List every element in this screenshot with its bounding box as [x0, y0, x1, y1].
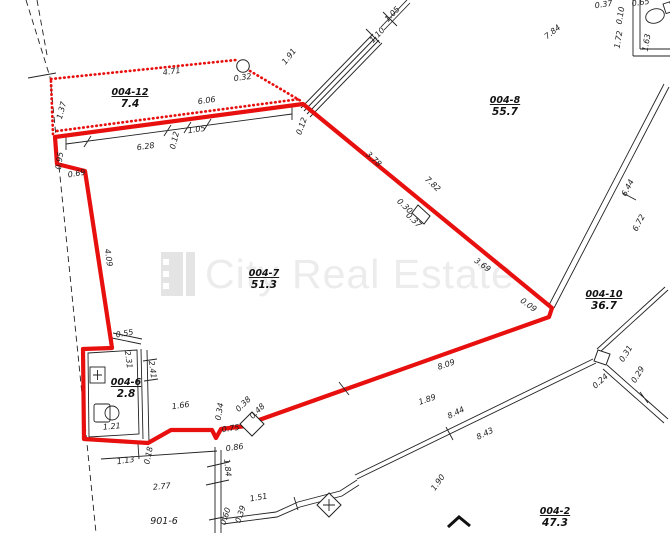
dimension-label: 0.55	[115, 328, 134, 340]
parcel-boundary-dashed	[26, 0, 96, 533]
boundary-bottom-right	[355, 287, 668, 479]
dimension-label: 0.09	[519, 296, 539, 314]
dimension-label: 2.31	[123, 350, 134, 369]
sink-icon	[94, 404, 119, 422]
dimension-label: 1.72	[613, 30, 625, 49]
dimension-label: 8.43	[475, 426, 495, 442]
dimension-label: 6.28	[136, 141, 155, 152]
room-id-label: 004-12	[112, 87, 149, 98]
dimension-label: 0.69	[67, 168, 86, 180]
dimension-label: 2.41	[147, 360, 158, 379]
dimension-label: 4.09	[103, 248, 114, 267]
dimension-label: 1.21	[103, 421, 122, 432]
dimension-label: 1.37	[55, 100, 69, 120]
dimension-label: 2.77	[153, 481, 172, 492]
dimension-label: 1.51	[249, 492, 268, 504]
dimension-label: 0.10	[615, 6, 627, 25]
room-area-label: 47.3	[541, 517, 568, 529]
dimension-label: 0.34	[214, 402, 226, 421]
wall-jog-square	[594, 350, 610, 365]
dimension-label: 901-6	[150, 516, 178, 527]
dimension-label: 0.12	[168, 131, 181, 150]
stove-icon	[90, 367, 105, 383]
dimension-label: 1.13	[116, 455, 135, 466]
room-area-label: 36.7	[591, 300, 618, 312]
dimension-label: 1.05	[187, 124, 206, 135]
room-id-label: 004-10	[586, 289, 623, 300]
room-area-label: 2.8	[117, 388, 136, 400]
room-id-label: 004-7	[249, 268, 280, 279]
symbol-chevron	[448, 517, 470, 527]
dimension-label: 1.90	[429, 473, 447, 493]
boundary-ticks	[339, 382, 453, 440]
room-id-label: 004-2	[540, 506, 571, 517]
dimension-label: 6.44	[620, 178, 636, 198]
dimension-label: 6.72	[631, 213, 647, 233]
dimension-label: 0.18	[142, 446, 155, 465]
room-area-label: 7.4	[121, 98, 140, 110]
dimension-labels: 4.710.321.916.061.376.280.121.050.950.69…	[54, 0, 653, 527]
dimension-label: 8.09	[436, 357, 456, 371]
dimension-label: 0.24	[591, 372, 610, 391]
room-area-label: 51.3	[251, 279, 277, 291]
dimension-label: 8.44	[446, 405, 466, 421]
dimension-label: 7.84	[543, 23, 563, 41]
dimension-label: 4.71	[162, 66, 181, 77]
boundary-tick	[28, 73, 56, 78]
dimension-label: 0.32	[233, 72, 252, 83]
dimension-label: 0.12	[294, 116, 309, 136]
room-id-label: 004-8	[490, 95, 521, 106]
dimension-label: 0.31	[617, 344, 634, 364]
survey-marker-diamond	[317, 493, 341, 517]
dimension-label: 6.06	[197, 95, 216, 106]
dimension-label: 0.37	[594, 0, 614, 10]
dimension-label: 0.75	[221, 423, 240, 434]
dimension-label: 0.65	[631, 0, 650, 8]
dimension-label: 7.82	[423, 175, 442, 194]
floor-plan-page: City Real Estate	[0, 0, 670, 533]
room-id-label: 004-6	[111, 377, 142, 388]
dimension-label: 1.84	[222, 458, 233, 477]
room-area-label: 55.7	[492, 106, 519, 118]
boundary-right-double	[549, 84, 669, 308]
dimension-label: 1.89	[417, 392, 437, 406]
dimension-label: 1.66	[171, 400, 190, 411]
dimension-label: 0.29	[629, 365, 646, 385]
survey-point-circle	[237, 60, 250, 73]
dimension-label: 1.91	[280, 47, 298, 67]
dimension-line-top	[66, 107, 292, 150]
dimension-label: 0.86	[225, 442, 244, 453]
plan-drawing: 4.710.321.916.061.376.280.121.050.950.69…	[0, 0, 670, 533]
